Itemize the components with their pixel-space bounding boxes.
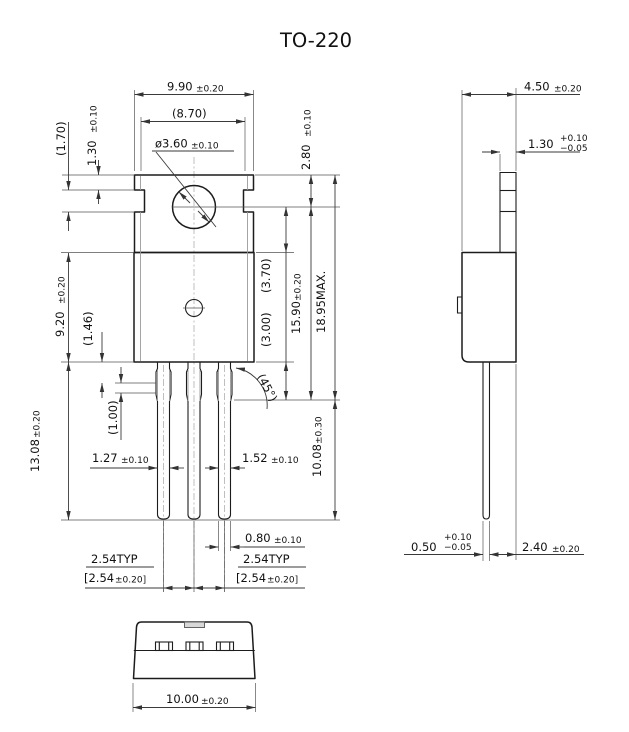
dim-lead-free-tol: ±0.30 [315, 416, 325, 444]
dim-lead-neck-value: (1.46) [81, 311, 95, 346]
side-lead [483, 362, 490, 519]
side-tab-outline [500, 173, 516, 253]
dim-lead1-width-value: 1.27 [92, 451, 118, 465]
drawing-canvas: TO-220 [0, 0, 629, 732]
dim-lead-to-back-tol: ±0.20 [552, 545, 580, 555]
dim-tab-width-tol: ±0.20 [196, 85, 224, 95]
dim-chamfer-angle: (45°) [236, 368, 280, 409]
dim-lead-length-tol: ±0.20 [33, 410, 43, 438]
dim-lead-thickness: 0.50 +0.10 −0.05 [404, 533, 507, 555]
dim-lead-shoulder: (1.00) [106, 367, 121, 440]
dim-body-height: 9.20 ±0.20 [53, 253, 69, 362]
dim-lead-thickness-tol-minus: −0.05 [444, 543, 472, 553]
dim-body-depth-value: 4.50 [524, 80, 550, 94]
dim-notch-offset-tol: ±0.10 [90, 105, 100, 133]
dim-hole-tol: ±0.10 [191, 142, 219, 152]
dim-lead-neck: (1.46) [81, 311, 102, 398]
dim-lead-tip-width: 0.80 ±0.10 [205, 531, 305, 547]
dim-body-height-tol: ±0.20 [58, 276, 68, 304]
dim-pitch-left-bracket-tol: ±0.20] [115, 576, 146, 586]
side-view: 4.50 ±0.20 1.30 +0.10 −0.05 0.50 +0.10 −… [404, 80, 588, 562]
datasheet-package-drawing: TO-220 [0, 0, 629, 732]
dim-lead-to-back-value: 2.40 [522, 540, 548, 554]
dim-bottom-width-tol: ±0.20 [201, 697, 229, 707]
bottom-lead-sections [156, 642, 234, 651]
dim-pitch-right-bracket: [2.54 [236, 571, 266, 585]
dim-lead-thickness-tol-plus: +0.10 [444, 533, 472, 543]
dim-pitch-left-typ: 2.54TYP [91, 552, 138, 566]
dim-tab-thickness-value: 1.30 [528, 137, 554, 151]
dim-overall-height-value: 18.95MAX. [314, 271, 328, 333]
dim-face-width-value: (8.70) [172, 107, 207, 121]
dim-lead-free-length: 10.08 ±0.30 [310, 400, 335, 520]
dim-tab-thickness: 1.30 +0.10 −0.05 [482, 134, 588, 154]
dim-notch-offset-value: 1.30 [85, 140, 99, 166]
dim-pitch-right-typ: 2.54TYP [243, 552, 290, 566]
dim-lead3-width: 1.52 ±0.10 [205, 451, 299, 468]
dim-body-height-value: 9.20 [53, 311, 67, 337]
dim-pitch-left-bracket: [2.54 [84, 571, 114, 585]
dim-chamfer-angle-value: (45°) [254, 371, 280, 403]
dim-tab-width-value: 9.90 [167, 80, 193, 94]
dim-tab-thickness-tol-minus: −0.05 [560, 144, 588, 154]
dim-body-depth-tol: ±0.20 [554, 85, 582, 95]
dim-lead-free-value: 10.08 [310, 444, 324, 477]
dim-notch-height-value: (1.70) [54, 121, 68, 156]
dim-pitch-right-bracket-tol: ±0.20] [267, 576, 298, 586]
dim-notch-height: (1.70) [54, 121, 69, 231]
dim-pitch-left: 2.54TYP [2.54 ±0.20] [84, 552, 194, 588]
dim-face-width: (8.70) [141, 107, 245, 122]
dim-lead-tip-tol: ±0.10 [274, 536, 302, 546]
dim-shoulder-length-value: (3.00) [259, 312, 273, 347]
dim-lead-tip-value: 0.80 [245, 531, 271, 545]
dim-tab-top-to-notch: 1.30 ±0.10 [85, 105, 100, 204]
dim-bottom-width: 10.00 ±0.20 [133, 683, 256, 712]
bottom-tab-mark [185, 622, 205, 628]
dim-bottom-width-value: 10.00 [166, 692, 199, 706]
dim-lead-length-value: 13.08 [28, 439, 42, 472]
dim-lead-thickness-value: 0.50 [411, 540, 437, 554]
dim-body-depth: 4.50 ±0.20 [462, 80, 582, 95]
dim-tab-top-to-hole: 2.80 ±0.10 [299, 109, 314, 207]
side-body-outline [462, 253, 516, 363]
dim-hole-shoulder-tol: ±0.20 [294, 273, 304, 301]
dim-tab-hole-value: 2.80 [299, 144, 313, 170]
dim-pitch-right: 2.54TYP [2.54 ±0.20] [194, 552, 306, 588]
bottom-view: 10.00 ±0.20 [133, 622, 256, 712]
front-view: 9.90 ±0.20 (8.70) ø3.60 ±0.10 1.30 ±0.10 [28, 80, 340, 593]
dim-lead3-width-tol: ±0.10 [271, 456, 299, 466]
dim-hole-body-value: (3.70) [259, 258, 273, 293]
dim-tab-hole-tol: ±0.10 [304, 109, 314, 137]
dim-lead-shoulder-value: (1.00) [106, 400, 120, 435]
dim-lead-to-back: 2.40 ±0.20 [498, 540, 584, 555]
page-title: TO-220 [279, 29, 352, 52]
dim-hole-shoulder-value: 15.90 [289, 301, 303, 334]
dim-hole-to-shoulder: 15.90 ±0.20 [289, 207, 311, 400]
dim-lead3-width-value: 1.52 [242, 451, 268, 465]
dim-overall-height: 18.95MAX. [314, 175, 335, 400]
dim-tab-width: 9.90 ±0.20 [135, 80, 254, 95]
dim-lead1-width-tol: ±0.10 [121, 456, 149, 466]
dim-tab-thickness-tol-plus: +0.10 [560, 134, 588, 144]
dim-hole-diameter: ø3.60 ±0.10 [152, 137, 234, 228]
dim-hole-value: ø3.60 [155, 137, 188, 151]
dim-lead-length: 13.08 ±0.20 [28, 362, 69, 520]
